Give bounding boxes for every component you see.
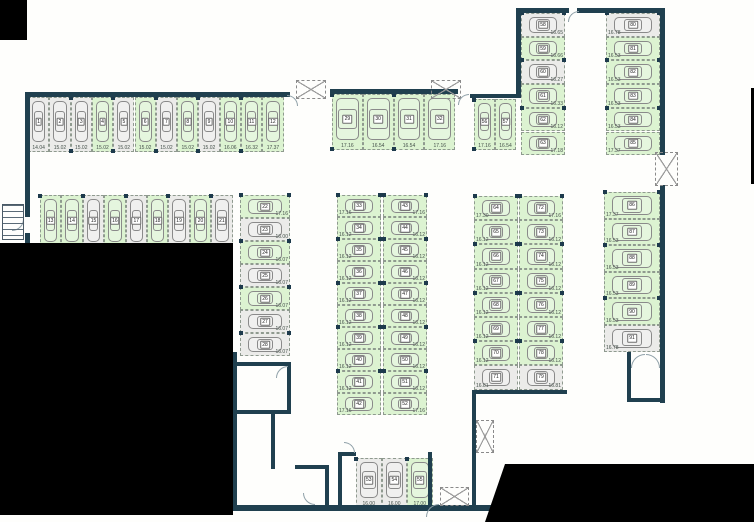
parking-space-3: 315.02 (71, 97, 92, 152)
space-number: 12 (268, 117, 278, 126)
parking-space-27: 2716.07 (240, 310, 290, 333)
door-arc-icon (568, 11, 579, 22)
parking-space-61[interactable]: 6116.33 (521, 84, 565, 108)
parking-space-66[interactable]: 6616.12 (474, 244, 518, 268)
space-size-label: 16.78 (608, 30, 621, 36)
space-number: 90 (627, 307, 637, 316)
space-size-label: 16.12 (412, 254, 425, 260)
space-size-label: 16.12 (550, 124, 563, 130)
car-icon: 13 (44, 199, 57, 242)
car-icon: 17 (130, 199, 143, 242)
space-number: 82 (628, 68, 638, 77)
parking-space-44[interactable]: 4416.12 (383, 217, 427, 239)
car-icon: 2 (53, 101, 66, 142)
parking-space-53: 5316.00 (356, 458, 382, 508)
space-size-label: 16.12 (339, 254, 352, 260)
space-number: 62 (538, 115, 548, 124)
space-number: 35 (354, 246, 364, 255)
parking-space-79: 7916.81 (519, 365, 563, 389)
car-icon: 57 (499, 103, 512, 140)
parking-space-32[interactable]: 3217.16 (424, 94, 455, 150)
void-region (0, 243, 233, 515)
space-size-label: 17.37 (606, 212, 619, 218)
space-size-label: 16.06 (221, 145, 240, 151)
space-number: 1 (35, 117, 42, 126)
car-icon: 30 (367, 98, 390, 140)
parking-space-58: 5816.65 (521, 13, 565, 37)
space-number: 44 (400, 224, 410, 233)
parking-space-76[interactable]: 7616.12 (519, 293, 563, 317)
space-number: 73 (536, 228, 546, 237)
parking-space-72[interactable]: 7217.16 (519, 196, 563, 220)
space-number: 67 (491, 276, 501, 285)
stairs-icon (2, 204, 24, 240)
parking-space-91: 9116.78 (604, 325, 660, 352)
wall (660, 8, 665, 155)
space-number: 40 (354, 356, 364, 365)
space-number: 29 (343, 115, 353, 124)
space-size-label: 16.12 (476, 237, 489, 243)
space-number: 36 (354, 268, 364, 277)
wall (470, 94, 520, 98)
parking-floor-plan: 114.04215.02315.02415.02515.02615.02715.… (0, 0, 754, 522)
parking-space-75[interactable]: 7516.12 (519, 269, 563, 293)
car-icon: 20 (194, 199, 207, 242)
parking-space-47[interactable]: 4716.12 (383, 283, 427, 305)
space-size-label: 16.12 (412, 386, 425, 392)
car-icon: 54 (386, 462, 404, 498)
space-number: 81 (628, 44, 638, 53)
space-number: 76 (536, 301, 546, 310)
space-size-label: 16.12 (412, 342, 425, 348)
wall (233, 410, 291, 414)
space-number: 32 (435, 115, 445, 124)
shaft-icon (655, 152, 678, 186)
space-number: 91 (627, 334, 637, 343)
wall (516, 8, 569, 13)
space-number: 9 (206, 117, 213, 126)
parking-space-2: 215.02 (49, 97, 70, 152)
space-size-label: 16.12 (476, 358, 489, 364)
space-size-label: 16.12 (412, 298, 425, 304)
parking-space-37[interactable]: 3716.12 (337, 283, 381, 305)
space-number: 70 (491, 349, 501, 358)
space-number: 53 (364, 476, 374, 485)
space-size-label: 16.12 (339, 276, 352, 282)
door-arc-icon (631, 354, 645, 368)
wall (338, 452, 342, 508)
parking-space-22[interactable]: 2217.16 (240, 195, 290, 218)
door-arc-icon (276, 366, 288, 378)
space-size-label: 17.18 (550, 148, 563, 154)
space-number: 5 (120, 117, 127, 126)
space-number: 6 (142, 117, 149, 126)
wall (660, 185, 665, 403)
space-number: 10 (226, 117, 236, 126)
space-size-label: 16.81 (548, 383, 561, 389)
space-size-label: 16.53 (606, 238, 619, 244)
parking-space-90[interactable]: 9016.53 (604, 298, 660, 325)
car-icon: 53 (360, 462, 378, 498)
space-size-label: 14.04 (29, 145, 48, 151)
door-arc-icon (303, 493, 315, 505)
parking-space-88[interactable]: 8816.53 (604, 245, 660, 272)
parking-space-51[interactable]: 5116.12 (383, 371, 427, 393)
parking-space-43[interactable]: 4317.16 (383, 195, 427, 217)
space-number: 60 (538, 68, 548, 77)
space-size-label: 16.32 (242, 145, 261, 151)
parking-space-40[interactable]: 4016.12 (337, 349, 381, 371)
shaft-icon (476, 420, 494, 453)
space-number: 50 (400, 356, 410, 365)
car-icon: 16 (108, 199, 121, 242)
space-size-label: 16.12 (339, 298, 352, 304)
parking-space-35[interactable]: 3516.12 (337, 239, 381, 261)
space-size-label: 16.53 (608, 101, 621, 107)
parking-space-81[interactable]: 8116.53 (606, 37, 660, 61)
parking-space-87[interactable]: 8716.53 (604, 219, 660, 246)
space-number: 24 (260, 248, 270, 257)
space-number: 20 (196, 216, 206, 225)
parking-space-77[interactable]: 7716.12 (519, 317, 563, 341)
parking-space-59[interactable]: 5916.66 (521, 37, 565, 61)
parking-space-56[interactable]: 5617.16 (474, 99, 495, 150)
parking-space-6[interactable]: 615.02 (135, 97, 156, 152)
space-size-label: 16.12 (339, 364, 352, 370)
wall (627, 352, 631, 402)
space-number: 46 (400, 268, 410, 277)
car-icon: 31 (398, 98, 421, 140)
space-number: 34 (354, 224, 364, 233)
space-size-label: 16.12 (476, 310, 489, 316)
car-icon: 55 (411, 462, 429, 498)
space-number: 72 (536, 204, 546, 213)
door-arc-icon (344, 442, 355, 453)
space-number: 7 (163, 117, 170, 126)
space-number: 64 (491, 204, 501, 213)
parking-space-46[interactable]: 4616.12 (383, 261, 427, 283)
space-number: 19 (174, 216, 184, 225)
wall (271, 414, 275, 469)
space-number: 39 (354, 334, 364, 343)
parking-space-85[interactable]: 8517.37 (606, 132, 660, 156)
parking-space-23: 2316.00 (240, 218, 290, 241)
parking-space-34[interactable]: 3416.12 (337, 217, 381, 239)
car-icon: 7 (160, 101, 173, 142)
space-number: 45 (400, 246, 410, 255)
space-number: 13 (46, 216, 56, 225)
space-number: 33 (354, 202, 364, 211)
space-size-label: 17.16 (339, 210, 352, 216)
space-number: 66 (491, 252, 501, 261)
space-size-label: 15.02 (114, 145, 133, 151)
parking-space-39[interactable]: 3916.12 (337, 327, 381, 349)
space-size-label: 15.02 (157, 145, 176, 151)
shaft-icon (440, 487, 469, 506)
space-number: 68 (491, 301, 501, 310)
space-size-label: 16.07 (275, 349, 288, 355)
car-icon: 14 (65, 199, 78, 242)
space-size-label: 16.53 (606, 318, 619, 324)
space-size-label: 16.12 (548, 358, 561, 364)
parking-space-89[interactable]: 8916.53 (604, 272, 660, 299)
door-arc-icon (646, 354, 660, 368)
car-icon: 3 (75, 101, 88, 142)
parking-space-80: 8016.78 (606, 13, 660, 37)
space-number: 87 (627, 228, 637, 237)
space-size-label: 16.54 (496, 143, 515, 149)
space-number: 8 (184, 117, 191, 126)
space-size-label: 16.12 (339, 320, 352, 326)
void-region (0, 0, 27, 40)
space-number: 88 (627, 254, 637, 263)
space-size-label: 17.30 (476, 213, 489, 219)
space-size-label: 17.16 (412, 210, 425, 216)
space-number: 56 (480, 117, 490, 126)
space-size-label: 16.65 (550, 30, 563, 36)
space-size-label: 17.37 (608, 148, 621, 154)
space-number: 42 (354, 400, 364, 409)
wall (516, 8, 521, 98)
car-icon: 18 (151, 199, 164, 242)
space-number: 57 (501, 117, 511, 126)
parking-space-84[interactable]: 8416.53 (606, 108, 660, 132)
space-number: 27 (260, 317, 270, 326)
space-number: 17 (132, 216, 142, 225)
parking-space-10[interactable]: 1016.06 (220, 97, 241, 152)
wall (25, 92, 30, 217)
parking-space-42[interactable]: 4217.16 (337, 393, 381, 415)
parking-space-50[interactable]: 5016.12 (383, 349, 427, 371)
space-size-label: 16.54 (364, 143, 393, 149)
wall (428, 452, 432, 508)
car-icon: 11 (245, 101, 258, 142)
parking-space-4[interactable]: 415.02 (92, 97, 113, 152)
car-icon: 56 (478, 103, 491, 140)
parking-space-38[interactable]: 3816.12 (337, 305, 381, 327)
wall (295, 465, 329, 469)
car-icon: 1 (32, 101, 45, 142)
space-number: 14 (67, 216, 77, 225)
space-number: 25 (260, 271, 270, 280)
parking-space-82[interactable]: 8216.53 (606, 60, 660, 84)
space-size-label: 16.53 (608, 124, 621, 130)
space-number: 65 (491, 228, 501, 237)
space-number: 63 (538, 139, 548, 148)
parking-space-69[interactable]: 6916.12 (474, 317, 518, 341)
space-number: 49 (400, 334, 410, 343)
space-size-label: 15.02 (93, 145, 112, 151)
space-number: 43 (400, 202, 410, 211)
parking-space-33[interactable]: 3317.16 (337, 195, 381, 217)
space-size-label: 16.12 (339, 342, 352, 348)
space-size-label: 15.02 (72, 145, 91, 151)
space-size-label: 16.12 (548, 262, 561, 268)
parking-space-68[interactable]: 6816.12 (474, 293, 518, 317)
space-size-label: 16.12 (339, 232, 352, 238)
parking-space-45[interactable]: 4516.12 (383, 239, 427, 261)
space-size-label: 16.54 (395, 143, 424, 149)
space-number: 11 (247, 117, 256, 126)
parking-space-54: 5416.00 (382, 458, 408, 508)
car-icon: 15 (87, 199, 100, 242)
space-number: 31 (404, 115, 414, 124)
car-icon: 10 (224, 101, 237, 142)
car-icon: 6 (139, 101, 152, 142)
parking-space-63[interactable]: 6317.18 (521, 132, 565, 156)
car-icon: 5 (117, 101, 130, 142)
car-icon: 8 (181, 101, 194, 142)
space-size-label: 16.12 (548, 310, 561, 316)
parking-space-78[interactable]: 7816.12 (519, 341, 563, 365)
car-icon: 29 (336, 98, 359, 140)
space-number: 54 (389, 476, 399, 485)
parking-space-29[interactable]: 2917.16 (332, 94, 363, 150)
parking-space-41[interactable]: 4116.12 (337, 371, 381, 393)
parking-space-11[interactable]: 1116.32 (241, 97, 262, 152)
car-icon: 9 (202, 101, 215, 142)
space-number: 15 (89, 216, 99, 225)
parking-space-9: 915.02 (198, 97, 219, 152)
wall (233, 352, 237, 509)
wall (472, 390, 567, 394)
space-number: 26 (260, 294, 270, 303)
space-number: 61 (538, 92, 548, 101)
space-number: 48 (400, 312, 410, 321)
parking-space-7: 715.02 (156, 97, 177, 152)
space-size-label: 16.53 (608, 77, 621, 83)
space-number: 23 (260, 225, 270, 234)
car-icon: 32 (428, 98, 451, 140)
space-size-label: 16.53 (606, 265, 619, 271)
space-size-label: 16.27 (550, 77, 563, 83)
wall (627, 398, 664, 402)
space-number: 58 (538, 21, 548, 30)
space-number: 4 (99, 117, 106, 126)
parking-space-8[interactable]: 815.02 (177, 97, 198, 152)
parking-space-57[interactable]: 5716.54 (495, 99, 516, 150)
space-size-label: 17.16 (475, 143, 494, 149)
space-number: 78 (536, 349, 546, 358)
parking-space-5: 515.02 (113, 97, 134, 152)
space-number: 16 (110, 216, 120, 225)
space-size-label: 16.78 (606, 345, 619, 351)
parking-space-28: 2816.07 (240, 333, 290, 356)
space-number: 85 (628, 139, 638, 148)
parking-space-64[interactable]: 6417.30 (474, 196, 518, 220)
space-size-label: 16.81 (476, 383, 489, 389)
parking-space-74[interactable]: 7416.12 (519, 244, 563, 268)
space-number: 59 (538, 44, 548, 53)
wall (577, 8, 665, 13)
space-size-label: 17.16 (275, 211, 288, 217)
space-size-label: 16.12 (476, 262, 489, 268)
parking-space-70[interactable]: 7016.12 (474, 341, 518, 365)
space-size-label: 17.16 (412, 408, 425, 414)
parking-space-30[interactable]: 3016.54 (363, 94, 394, 150)
parking-space-31[interactable]: 3116.54 (394, 94, 425, 150)
parking-space-1: 114.04 (28, 97, 49, 152)
space-size-label: 16.12 (476, 286, 489, 292)
space-number: 55 (415, 476, 425, 485)
space-number: 38 (354, 312, 364, 321)
space-size-label: 15.02 (199, 145, 218, 151)
space-size-label: 15.02 (50, 145, 69, 151)
space-number: 51 (400, 378, 410, 387)
shaft-icon (296, 80, 326, 99)
space-size-label: 15.02 (178, 145, 197, 151)
space-number: 77 (536, 325, 546, 334)
space-size-label: 17.16 (425, 143, 454, 149)
car-icon: 21 (215, 199, 228, 242)
parking-space-67[interactable]: 6716.12 (474, 269, 518, 293)
space-size-label: 16.53 (608, 53, 621, 59)
parking-space-24[interactable]: 2416.07 (240, 241, 290, 264)
space-number: 22 (260, 202, 270, 211)
car-icon: 12 (266, 101, 279, 142)
parking-space-83[interactable]: 8316.53 (606, 84, 660, 108)
parking-space-60: 6016.27 (521, 60, 565, 84)
space-number: 83 (628, 92, 638, 101)
wall (233, 362, 291, 366)
space-number: 89 (627, 281, 637, 290)
void-region (485, 464, 754, 522)
space-number: 52 (400, 400, 410, 409)
wall (25, 92, 290, 97)
space-number: 37 (354, 290, 364, 299)
space-number: 75 (536, 276, 546, 285)
space-number: 3 (78, 117, 85, 126)
parking-space-52[interactable]: 5217.16 (383, 393, 427, 415)
parking-space-62[interactable]: 6216.12 (521, 108, 565, 132)
space-number: 84 (628, 115, 638, 124)
space-number: 71 (491, 373, 501, 382)
space-size-label: 16.12 (476, 334, 489, 340)
parking-space-71: 7116.81 (474, 365, 518, 389)
space-number: 28 (260, 340, 270, 349)
car-icon: 19 (172, 199, 185, 242)
space-size-label: 16.12 (339, 386, 352, 392)
space-number: 86 (627, 201, 637, 210)
parking-space-25: 2516.07 (240, 264, 290, 287)
space-number: 47 (400, 290, 410, 299)
car-icon: 4 (96, 101, 109, 142)
parking-space-36[interactable]: 3616.12 (337, 261, 381, 283)
space-number: 69 (491, 325, 501, 334)
parking-space-86[interactable]: 8617.37 (604, 192, 660, 219)
space-number: 2 (57, 117, 64, 126)
space-size-label: 17.16 (548, 213, 561, 219)
parking-space-26[interactable]: 2616.07 (240, 287, 290, 310)
space-size-label: 17.16 (333, 143, 362, 149)
parking-space-12[interactable]: 1217.37 (262, 97, 283, 152)
space-size-label: 16.07 (275, 303, 288, 309)
space-size-label: 16.53 (606, 291, 619, 297)
space-number: 79 (536, 373, 546, 382)
shaft-icon (431, 80, 461, 99)
parking-space-48[interactable]: 4816.12 (383, 305, 427, 327)
parking-space-49[interactable]: 4916.12 (383, 327, 427, 349)
space-number: 18 (153, 216, 163, 225)
space-number: 74 (536, 252, 546, 261)
wall (325, 465, 329, 507)
space-size-label: 15.02 (136, 145, 155, 151)
space-number: 41 (354, 378, 364, 387)
parking-space-65[interactable]: 6516.12 (474, 220, 518, 244)
space-number: 30 (373, 115, 383, 124)
parking-space-73[interactable]: 7316.12 (519, 220, 563, 244)
space-size-label: 16.07 (275, 257, 288, 263)
